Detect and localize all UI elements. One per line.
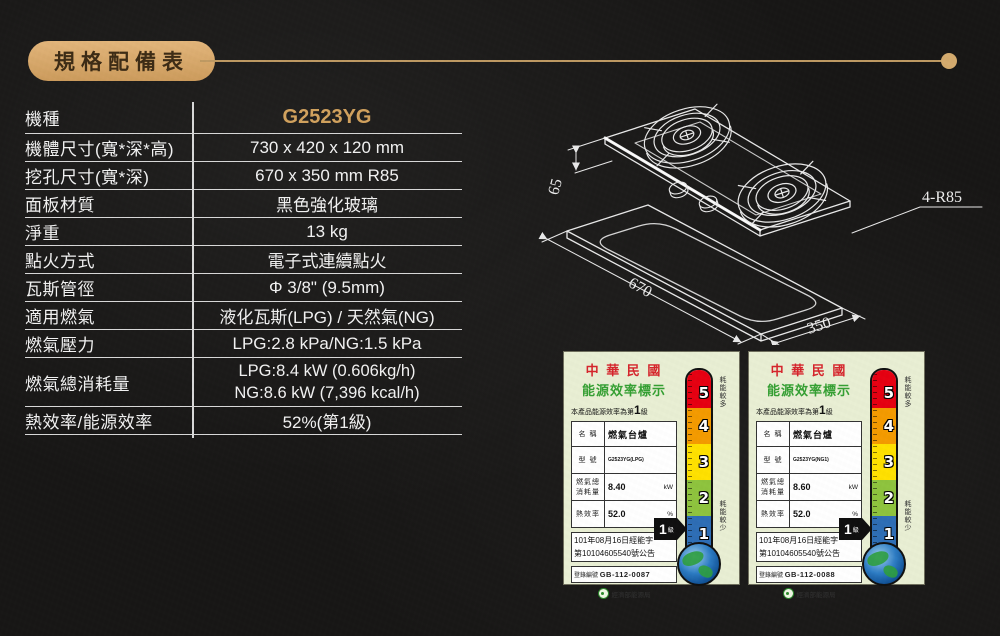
field-value: 燃氣台爐: [790, 422, 861, 446]
table-row: 點火方式 電子式連續點火: [25, 246, 462, 274]
spec-value: 52%(第1級): [192, 408, 462, 433]
pointer-unit: 級: [853, 525, 859, 534]
thermometer-tube: 5 4 3 2 1: [685, 368, 713, 554]
efficiency-value: 52.0: [608, 509, 626, 519]
table-row: 瓦斯管徑 Φ 3/8" (9.5mm): [25, 274, 462, 302]
grade-arrow-badge: 1級: [839, 518, 872, 540]
field-value: 8.60kW: [790, 474, 861, 500]
field-value: G2523YG(NG1): [790, 447, 861, 473]
registry-label: 登錄編號: [759, 573, 783, 579]
energy-bureau-icon: [598, 588, 609, 599]
spec-value: 670 x 350 mm R85: [192, 166, 462, 186]
spec-value: LPG:2.8 kPa/NG:1.5 kPa: [192, 334, 462, 354]
table-row: 機體尺寸(寬*深*高) 730 x 420 x 120 mm: [25, 134, 462, 162]
globe-icon: [677, 542, 721, 586]
efficiency-unit: %: [852, 511, 858, 518]
registry-number: GB-112-0088: [785, 570, 836, 579]
grade-sentence-prefix: 本產品能源效率為第: [756, 409, 819, 416]
spec-value-line1: LPG:8.4 kW (0.606kg/h): [192, 360, 462, 382]
label-grade-sentence: 本產品能源效率為第1級: [756, 403, 862, 417]
spec-label: 燃氣總消耗量: [25, 370, 192, 395]
low-consumption-label: 耗能較少: [902, 500, 912, 532]
label-grade-sentence: 本產品能源效率為第1級: [571, 403, 677, 417]
spec-value: Φ 3/8" (9.5mm): [192, 278, 462, 298]
registry-box: 登錄編號 GB-112-0087: [571, 566, 677, 583]
corner-radius-label: 4-R85: [922, 189, 962, 206]
low-consumption-label: 耗能較少: [717, 500, 727, 532]
field-value: 8.40kW: [605, 474, 676, 500]
thermometer-tube: 5 4 3 2 1: [870, 368, 898, 554]
table-row: 燃氣總消耗量 LPG:8.4 kW (0.606kg/h) NG:8.6 kW …: [25, 358, 462, 407]
label-country: 中 華 民 國: [756, 360, 862, 379]
grade-number: 1: [819, 403, 826, 417]
energy-bureau-icon: [783, 588, 794, 599]
spec-table-divider: [192, 102, 194, 438]
label-row-name: 名 稱 燃氣台爐: [757, 422, 861, 447]
agency-row: 經濟部能源局: [756, 588, 862, 599]
level-number: 1: [699, 525, 709, 543]
registry-number: GB-112-0087: [600, 570, 651, 579]
burner-front: [731, 154, 835, 238]
consumption-value: 8.40: [608, 482, 626, 492]
label-title: 能源效率標示: [571, 380, 677, 399]
announcement-line2: 第10104605540號公告: [759, 547, 859, 560]
spec-value: 黑色強化玻璃: [192, 191, 462, 216]
field-key: 名 稱: [572, 422, 605, 446]
spec-label: 機體尺寸(寬*深*高): [25, 135, 192, 160]
field-key-line1: 燃氣總: [576, 477, 600, 487]
level-number: 2: [884, 489, 894, 507]
spec-label: 淨重: [25, 219, 192, 244]
dim-height-label: 65: [545, 177, 566, 197]
spec-label: 挖孔尺寸(寬*深): [25, 163, 192, 188]
efficiency-unit: %: [667, 511, 673, 518]
spec-value: 電子式連續點火: [192, 247, 462, 272]
table-row: 挖孔尺寸(寬*深) 670 x 350 mm R85: [25, 162, 462, 190]
registry-label: 登錄編號: [574, 573, 598, 579]
field-key: 型 號: [757, 447, 790, 473]
field-key: 熱效率: [572, 501, 605, 527]
energy-label-lpg: 中 華 民 國 能源效率標示 本產品能源效率為第1級 名 稱 燃氣台爐 型 號 …: [563, 351, 740, 585]
table-row: 燃氣壓力 LPG:2.8 kPa/NG:1.5 kPa: [25, 330, 462, 358]
spec-label: 機種: [25, 105, 192, 130]
table-row: 熱效率/能源效率 52%(第1級): [25, 407, 462, 435]
label-title: 能源效率標示: [756, 380, 862, 399]
agency-row: 經濟部能源局: [571, 588, 677, 599]
level-number: 4: [884, 417, 894, 435]
dim-depth-label: 350: [805, 314, 833, 338]
thermo-ticks: [688, 374, 692, 548]
page-title-text: 規格配備表: [54, 46, 189, 76]
spec-label: 瓦斯管徑: [25, 275, 192, 300]
table-row: 機種 G2523YG: [25, 102, 462, 134]
dim-width-label: 670: [625, 275, 654, 302]
spec-value: 液化瓦斯(LPG) / 天然氣(NG): [192, 303, 462, 328]
grade-sentence-prefix: 本產品能源效率為第: [571, 409, 634, 416]
spec-label: 面板材質: [25, 191, 192, 216]
field-key-line2: 消耗量: [761, 487, 785, 497]
glass-panel-outline: [605, 109, 850, 236]
high-consumption-label: 耗能較多: [717, 376, 727, 408]
field-key: 型 號: [572, 447, 605, 473]
pointer-unit: 級: [668, 525, 674, 534]
spec-label: 點火方式: [25, 247, 192, 272]
label-row-consumption: 燃氣總消耗量 8.40kW: [572, 474, 676, 501]
agency-name: 經濟部能源局: [797, 589, 836, 599]
level-number: 2: [699, 489, 709, 507]
spec-table: 機種 G2523YG 機體尺寸(寬*深*高) 730 x 420 x 120 m…: [25, 102, 462, 449]
level-number: 3: [884, 453, 894, 471]
pointer-grade: 1: [659, 522, 667, 536]
label-spec-table: 名 稱 燃氣台爐 型 號 G2523YG(NG1) 燃氣總消耗量 8.60kW …: [756, 421, 862, 528]
page-title: 規格配備表: [28, 41, 215, 81]
consumption-unit: kW: [849, 484, 858, 491]
label-spec-table: 名 稱 燃氣台爐 型 號 G2523YG(LPG) 燃氣總消耗量 8.40kW …: [571, 421, 677, 528]
grade-sentence-suffix: 級: [641, 409, 648, 416]
agency-name: 經濟部能源局: [612, 589, 651, 599]
level-number: 4: [699, 417, 709, 435]
high-consumption-label: 耗能較多: [902, 376, 912, 408]
globe-icon: [862, 542, 906, 586]
field-value: G2523YG(LPG): [605, 447, 676, 473]
product-isometric-drawing: 65 670 350 4-R85: [530, 85, 990, 345]
consumption-unit: kW: [664, 484, 673, 491]
field-key: 燃氣總消耗量: [757, 474, 790, 500]
grade-arrow-badge: 1級: [654, 518, 687, 540]
field-key: 名 稱: [757, 422, 790, 446]
spec-value-line2: NG:8.6 kW (7,396 kcal/h): [192, 382, 462, 404]
corner-radius-leader: [852, 207, 982, 233]
field-key: 燃氣總消耗量: [572, 474, 605, 500]
field-key-line1: 燃氣總: [761, 477, 785, 487]
label-row-consumption: 燃氣總消耗量 8.60kW: [757, 474, 861, 501]
spec-value: LPG:8.4 kW (0.606kg/h) NG:8.6 kW (7,396 …: [192, 360, 462, 405]
spec-sheet: 規格配備表 機種 G2523YG 機體尺寸(寬*深*高) 730 x 420 x…: [0, 0, 1000, 636]
level-number: 1: [884, 525, 894, 543]
thermo-ticks: [873, 374, 877, 548]
field-key-line2: 消耗量: [576, 487, 600, 497]
table-row: 適用燃氣 液化瓦斯(LPG) / 天然氣(NG): [25, 302, 462, 330]
label-row-model: 型 號 G2523YG(LPG): [572, 447, 676, 474]
level-number: 3: [699, 453, 709, 471]
spec-value: 730 x 420 x 120 mm: [192, 138, 462, 158]
pointer-grade: 1: [844, 522, 852, 536]
energy-label-ng: 中 華 民 國 能源效率標示 本產品能源效率為第1級 名 稱 燃氣台爐 型 號 …: [748, 351, 925, 585]
table-row: 淨重 13 kg: [25, 218, 462, 246]
header-rule: [200, 60, 948, 62]
label-country: 中 華 民 國: [571, 360, 677, 379]
label-row-model: 型 號 G2523YG(NG1): [757, 447, 861, 474]
grade-sentence-suffix: 級: [826, 409, 833, 416]
spec-label: 適用燃氣: [25, 303, 192, 328]
spec-value-model: G2523YG: [192, 106, 462, 129]
grade-number: 1: [634, 403, 641, 417]
label-row-name: 名 稱 燃氣台爐: [572, 422, 676, 447]
spec-value: 13 kg: [192, 222, 462, 242]
efficiency-value: 52.0: [793, 509, 811, 519]
consumption-value: 8.60: [793, 482, 811, 492]
header-rule-dot: [941, 53, 957, 69]
energy-label-content: 中 華 民 國 能源效率標示 本產品能源效率為第1級 名 稱 燃氣台爐 型 號 …: [571, 360, 677, 599]
table-row: 面板材質 黑色強化玻璃: [25, 190, 462, 218]
energy-label-content: 中 華 民 國 能源效率標示 本產品能源效率為第1級 名 稱 燃氣台爐 型 號 …: [756, 360, 862, 599]
counter-cutout-outline: [567, 205, 842, 341]
registry-box: 登錄編號 GB-112-0088: [756, 566, 862, 583]
spec-label: 燃氣壓力: [25, 331, 192, 356]
field-key: 熱效率: [757, 501, 790, 527]
level-number: 5: [884, 384, 894, 402]
level-number: 5: [699, 384, 709, 402]
table-row-stub: [25, 435, 462, 449]
spec-label: 熱效率/能源效率: [25, 408, 192, 433]
field-value: 燃氣台爐: [605, 422, 676, 446]
announcement-line2: 第10104605540號公告: [574, 547, 674, 560]
